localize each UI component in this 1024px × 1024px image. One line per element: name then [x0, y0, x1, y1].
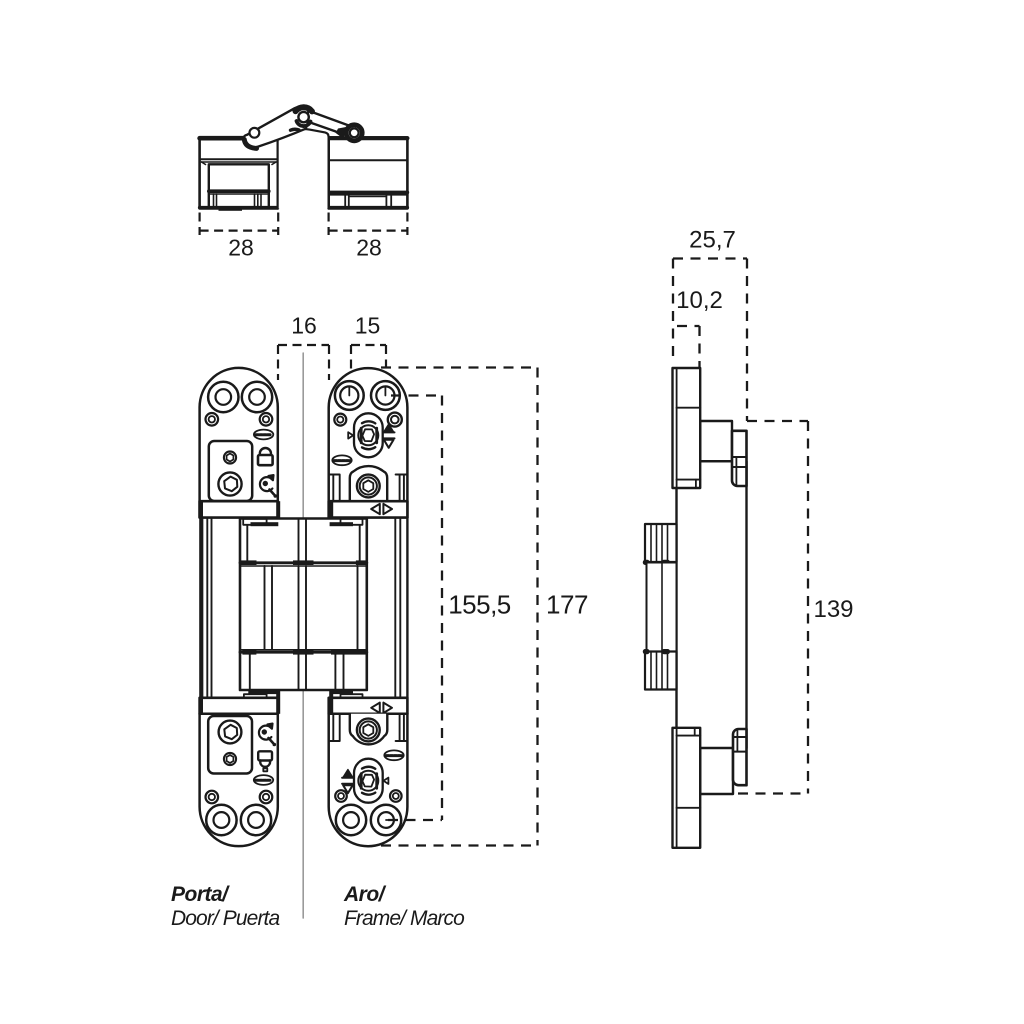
svg-text:25,7: 25,7 — [689, 227, 736, 254]
svg-text:139: 139 — [813, 596, 853, 623]
svg-text:177: 177 — [546, 590, 588, 620]
svg-text:15: 15 — [355, 313, 381, 339]
svg-text:10,2: 10,2 — [676, 287, 723, 314]
svg-text:Door/ Puerta: Door/ Puerta — [171, 907, 279, 930]
svg-text:155,5: 155,5 — [448, 590, 511, 620]
svg-text:Aro/: Aro/ — [343, 883, 387, 906]
svg-text:28: 28 — [228, 235, 254, 261]
svg-text:28: 28 — [356, 235, 382, 261]
svg-text:Porta/: Porta/ — [171, 883, 230, 906]
svg-text:Frame/ Marco: Frame/ Marco — [344, 907, 465, 930]
svg-text:16: 16 — [291, 313, 317, 339]
